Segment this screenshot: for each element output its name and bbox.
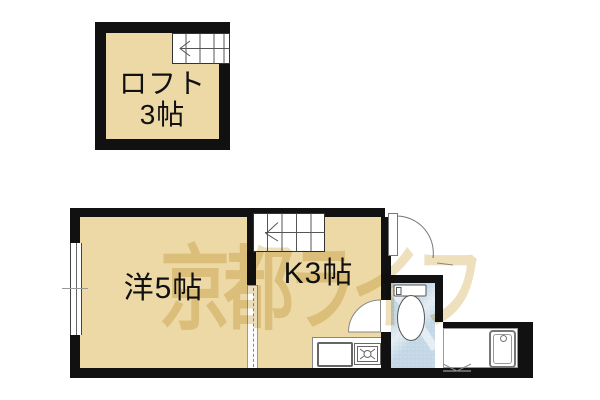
kitchen-staircase-icon	[253, 213, 325, 252]
wall-top	[70, 208, 385, 217]
entrance-step-tick	[436, 260, 454, 268]
entrance-door-arc-icon	[396, 214, 436, 260]
toilet-icon	[391, 283, 435, 368]
bath-folding-door-icon	[441, 358, 473, 374]
kitchen-sink-icon	[317, 342, 353, 367]
wall-bath-top	[443, 322, 518, 328]
kitchen-room-label: K3帖	[256, 257, 381, 291]
bathtub-drain-icon	[500, 335, 507, 342]
wall-toilet-top	[381, 275, 443, 283]
bathtub-icon	[489, 330, 516, 368]
room-divider-sliding-door-icon	[247, 285, 258, 369]
western-room-label: 洋5帖	[80, 272, 247, 306]
floor-plan: ロフト 3帖	[0, 0, 600, 400]
stove-icon	[354, 343, 381, 365]
wall-toilet-right	[435, 283, 443, 322]
wall-bath-right	[518, 322, 533, 378]
loft-room-label: ロフト 3帖	[106, 68, 219, 130]
toilet-door-arc-icon	[348, 299, 382, 334]
loft-room-name: ロフト	[106, 68, 219, 99]
loft-room-size: 3帖	[106, 99, 219, 130]
toilet-door-gap	[381, 300, 391, 332]
entrance-door-leaf	[388, 213, 398, 256]
loft-staircase-icon	[172, 33, 230, 64]
wall-kitchen-right-lower	[381, 332, 391, 368]
wall-left-upper	[70, 208, 80, 243]
